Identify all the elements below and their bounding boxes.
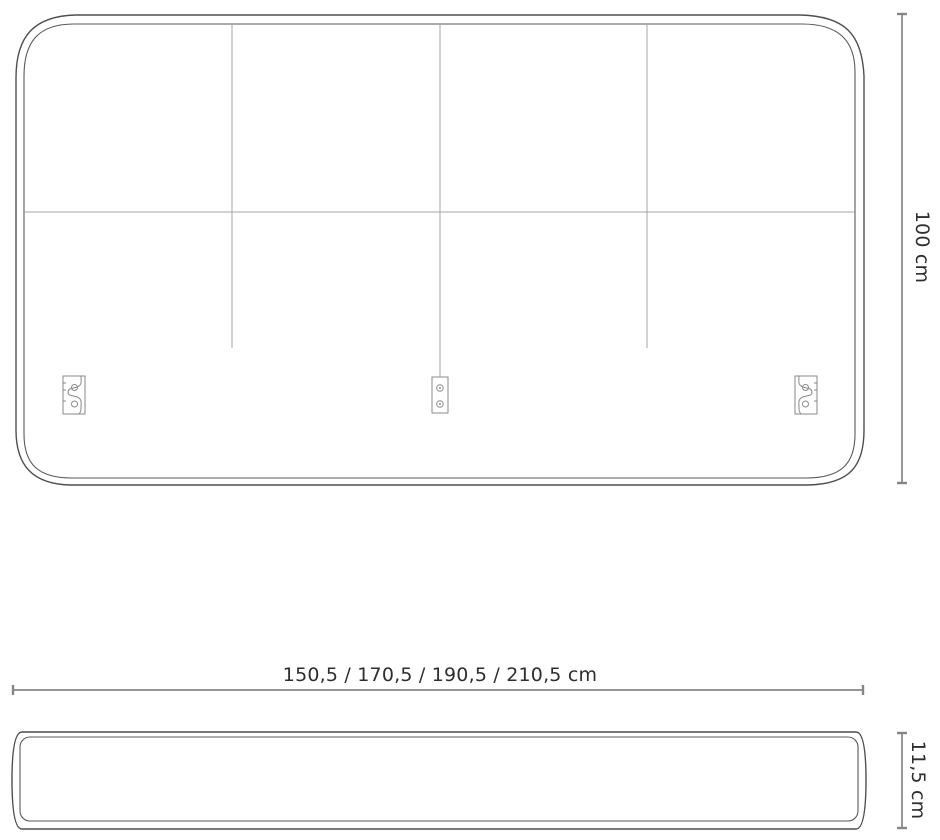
width-dimension: 150,5 / 170,5 / 190,5 / 210,5 cm <box>13 664 863 695</box>
thickness-dimension: 11,5 cm <box>897 733 929 828</box>
front-view <box>16 15 864 485</box>
height-dimension-label: 100 cm <box>911 211 933 283</box>
bracket-plate <box>795 376 817 414</box>
drawing-canvas: 100 cm 150,5 / 170,5 / 190,5 / 210,5 cm … <box>0 0 940 840</box>
screw-hole-center <box>439 403 441 405</box>
headboard-technical-drawing: 100 cm 150,5 / 170,5 / 190,5 / 210,5 cm … <box>0 0 940 840</box>
side-view <box>12 732 866 829</box>
bracket-plate <box>63 376 85 414</box>
width-dimension-label: 150,5 / 170,5 / 190,5 / 210,5 cm <box>283 664 597 686</box>
height-dimension: 100 cm <box>897 14 933 483</box>
side-inner-contour <box>20 737 858 821</box>
side-view-inner-contour <box>20 737 858 821</box>
side-outer-contour <box>12 732 866 829</box>
side-view-outer-silhouette <box>12 732 866 829</box>
screw-hole-center <box>439 387 441 389</box>
panel-seam-lines <box>24 24 855 377</box>
mounting-brackets <box>63 376 817 414</box>
screw-plate-bracket-center-icon <box>432 377 448 413</box>
thickness-dimension-label: 11,5 cm <box>907 741 929 820</box>
keyhole-bracket-right-icon <box>795 376 817 414</box>
keyhole-bracket-left-icon <box>63 376 85 414</box>
